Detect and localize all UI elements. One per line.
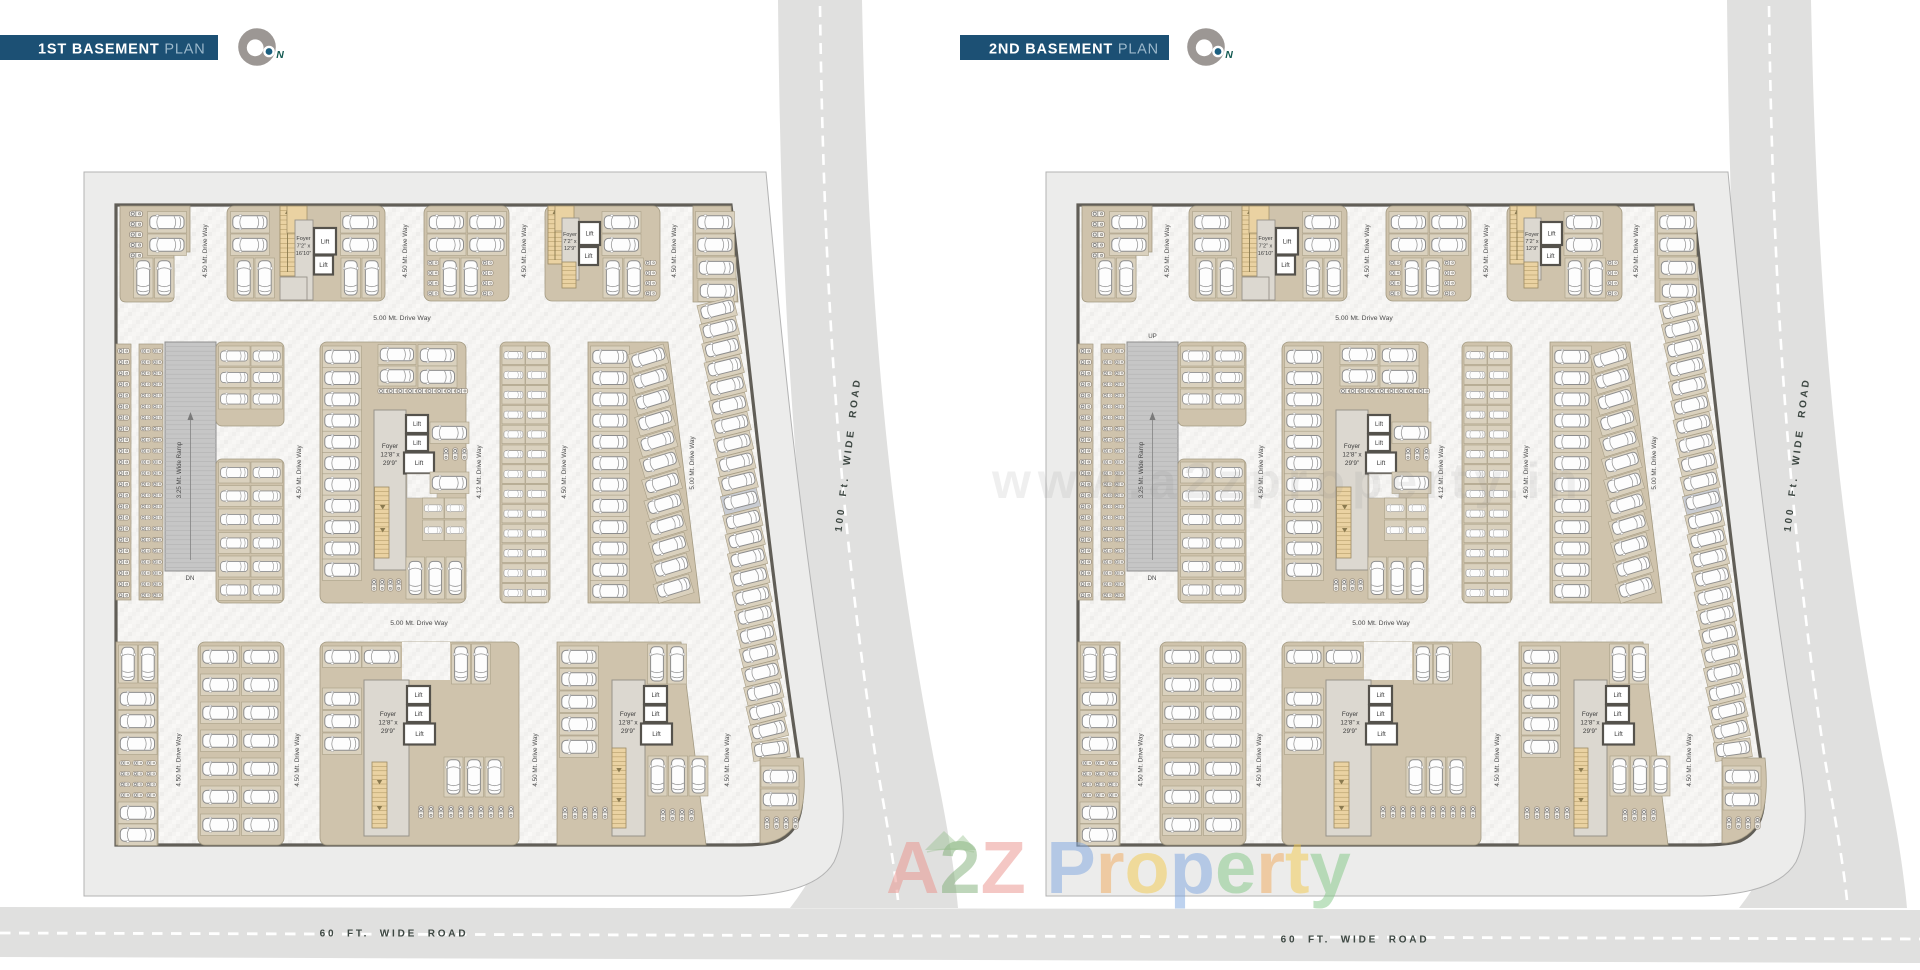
- svg-text:Foyer: Foyer: [620, 711, 637, 718]
- svg-text:3.25 Mt. Wide Ramp: 3.25 Mt. Wide Ramp: [176, 441, 183, 498]
- svg-text:1ST BASEMENT PLAN: 1ST BASEMENT PLAN: [38, 42, 206, 58]
- svg-text:Lift: Lift: [413, 441, 421, 447]
- svg-text:Foyer: Foyer: [563, 232, 577, 238]
- svg-text:4.50 Mt. Drive Way: 4.50 Mt. Drive Way: [294, 733, 301, 787]
- svg-text:Lift: Lift: [415, 460, 424, 467]
- svg-text:4.50 Mt. Drive Way: 4.50 Mt. Drive Way: [402, 224, 409, 278]
- svg-text:60 FT. WIDE ROAD: 60 FT. WIDE ROAD: [320, 929, 469, 940]
- svg-text:12’8” x: 12’8” x: [378, 720, 398, 727]
- svg-text:Lift: Lift: [414, 712, 422, 718]
- svg-text:5.00 Mt. Drive Way: 5.00 Mt. Drive Way: [689, 436, 696, 490]
- svg-text:Foyer: Foyer: [380, 711, 397, 718]
- svg-text:Lift: Lift: [321, 238, 330, 245]
- svg-text:12’8” x: 12’8” x: [618, 720, 638, 727]
- svg-text:4.50 Mt. Drive Way: 4.50 Mt. Drive Way: [521, 224, 528, 278]
- svg-text:4.50 Mt. Drive Way: 4.50 Mt. Drive Way: [296, 445, 303, 499]
- svg-text:2ND BASEMENT PLAN: 2ND BASEMENT PLAN: [989, 42, 1159, 58]
- svg-text:4.50 Mt. Drive Way: 4.50 Mt. Drive Way: [671, 224, 678, 278]
- svg-text:Foyer: Foyer: [296, 236, 310, 242]
- svg-text:29’9”: 29’9”: [381, 728, 395, 735]
- svg-text:Lift: Lift: [415, 731, 424, 738]
- svg-text:A2Z Property: A2Z Property: [886, 826, 1351, 909]
- svg-text:4.50 Mt. Drive Way: 4.50 Mt. Drive Way: [176, 733, 183, 787]
- svg-text:Lift: Lift: [414, 693, 422, 699]
- svg-text:60 FT. WIDE ROAD: 60 FT. WIDE ROAD: [1281, 935, 1430, 946]
- svg-text:4.50 Mt. Drive Way: 4.50 Mt. Drive Way: [202, 224, 209, 278]
- svg-text:5.00 Mt. Drive Way: 5.00 Mt. Drive Way: [373, 315, 431, 322]
- svg-text:Lift: Lift: [584, 254, 592, 260]
- svg-text:5.00 Mt. Drive Way: 5.00 Mt. Drive Way: [390, 620, 448, 627]
- svg-text:Lift: Lift: [652, 731, 661, 738]
- svg-text:29’9”: 29’9”: [383, 460, 397, 467]
- svg-text:4.50 Mt. Drive Way: 4.50 Mt. Drive Way: [532, 733, 539, 787]
- svg-text:N: N: [1225, 49, 1233, 61]
- svg-text:29’9”: 29’9”: [621, 728, 635, 735]
- svg-text:Lift: Lift: [413, 422, 421, 428]
- svg-text:N: N: [276, 49, 284, 61]
- svg-text:7’2” x: 7’2” x: [297, 244, 311, 250]
- svg-text:4.12 Mt. Drive Way: 4.12 Mt. Drive Way: [476, 445, 483, 499]
- svg-text:16’10”: 16’10”: [296, 251, 312, 257]
- svg-text:Lift: Lift: [651, 693, 659, 699]
- svg-text:Lift: Lift: [319, 262, 328, 269]
- svg-text:Lift: Lift: [651, 712, 659, 718]
- svg-text:www.a2zproperty.in: www.a2zproperty.in: [991, 453, 1585, 509]
- svg-text:12’9”: 12’9”: [564, 246, 576, 252]
- svg-text:4.50 Mt. Drive Way: 4.50 Mt. Drive Way: [724, 733, 731, 787]
- svg-text:Foyer: Foyer: [382, 443, 399, 450]
- svg-text:7’2” x: 7’2” x: [563, 239, 576, 245]
- svg-text:12’8” x: 12’8” x: [380, 452, 400, 459]
- svg-text:Lift: Lift: [585, 232, 593, 238]
- svg-text:4.50 Mt. Drive Way: 4.50 Mt. Drive Way: [561, 445, 568, 499]
- svg-text:DN: DN: [186, 575, 195, 582]
- svg-text:UP: UP: [1148, 333, 1157, 340]
